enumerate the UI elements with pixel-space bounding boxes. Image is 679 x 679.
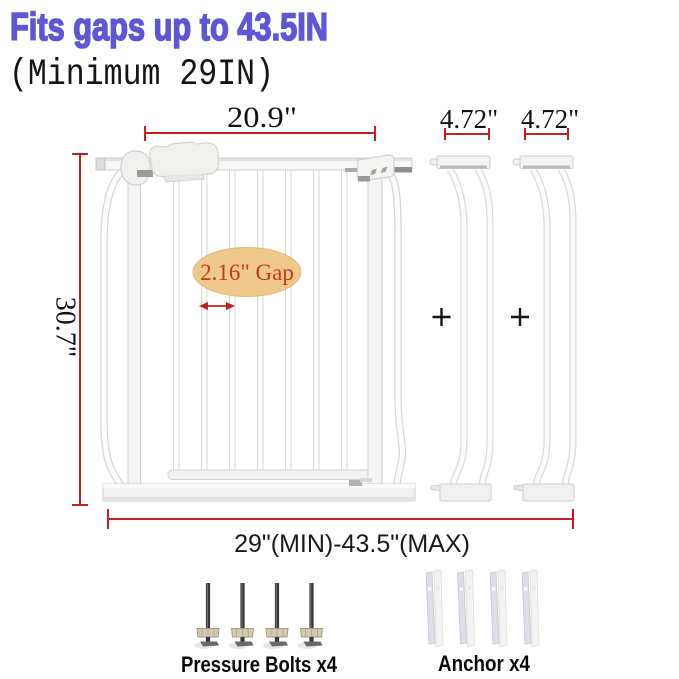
- svg-text:4.72": 4.72": [521, 104, 579, 134]
- svg-text:4.72": 4.72": [440, 104, 498, 134]
- svg-text:20.9": 20.9": [227, 101, 297, 134]
- svg-text:29"(MIN)-43.5"(MAX): 29"(MIN)-43.5"(MAX): [234, 530, 470, 558]
- svg-text:2.16" Gap: 2.16" Gap: [200, 260, 294, 285]
- svg-text:30.7": 30.7": [50, 297, 81, 357]
- svg-text:Fits gaps up to 43.5IN: Fits gaps up to 43.5IN: [10, 6, 328, 49]
- svg-text:Pressure Bolts x4: Pressure Bolts x4: [181, 652, 338, 677]
- svg-text:Anchor x4: Anchor x4: [438, 651, 531, 676]
- svg-text:(Minimum 29IN): (Minimum 29IN): [9, 54, 274, 96]
